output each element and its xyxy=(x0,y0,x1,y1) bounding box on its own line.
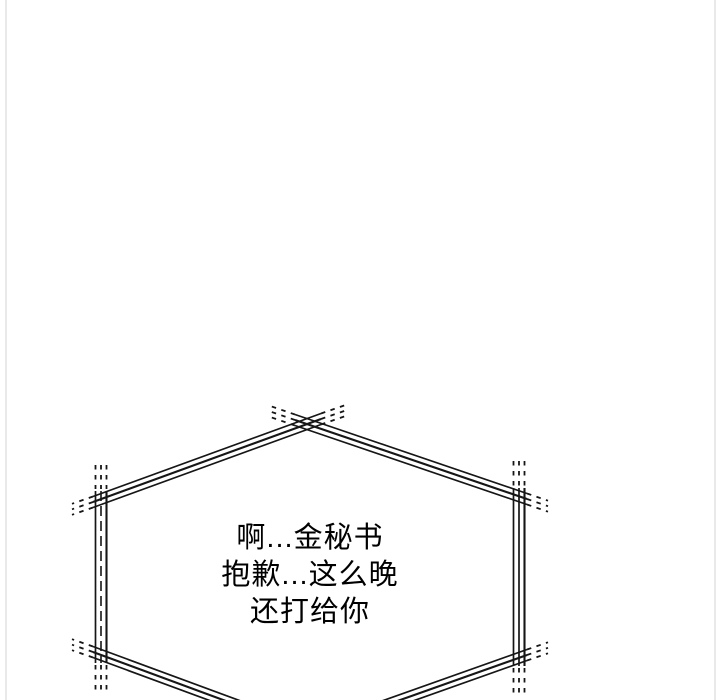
speech-line-1: 啊...金秘书 xyxy=(101,520,519,557)
comic-page: 啊...金秘书 抱歉...这么晚 还打给你 xyxy=(0,0,720,700)
speech-bubble-text: 啊...金秘书 抱歉...这么晚 还打给你 xyxy=(101,520,519,631)
speech-line-3: 还打给你 xyxy=(101,594,519,631)
speech-line-2: 抱歉...这么晚 xyxy=(101,557,519,594)
